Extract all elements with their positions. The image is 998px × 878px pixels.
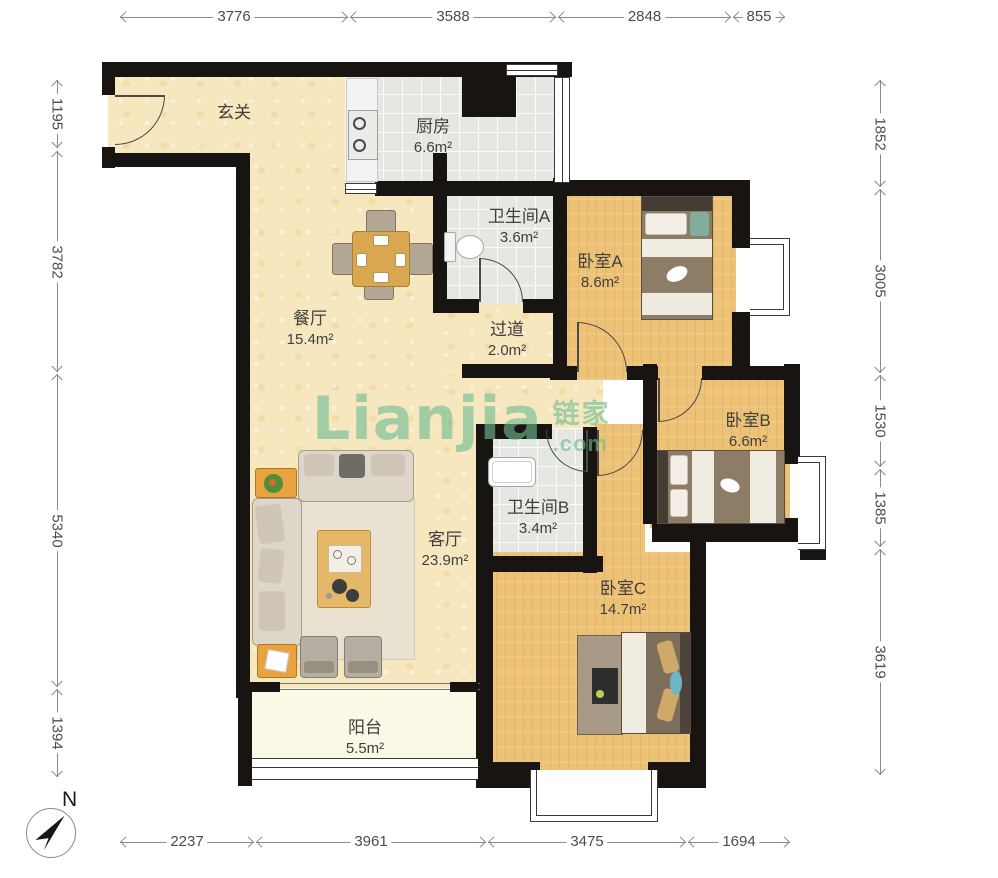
toilet-icon bbox=[444, 232, 456, 262]
dimension-top-3: 2848 bbox=[558, 10, 731, 24]
room-label-bedroom-a: 卧室A 8.6m² bbox=[577, 251, 622, 293]
plant-flower bbox=[269, 479, 276, 486]
balcony-slider-line bbox=[250, 683, 480, 690]
plate bbox=[395, 253, 406, 267]
bay-window-bedroom-b bbox=[798, 456, 826, 550]
sofa-cushion bbox=[259, 591, 285, 631]
dimension-right-3: 1530 bbox=[873, 375, 887, 467]
room-label-entrance: 玄关 bbox=[217, 102, 251, 124]
wall bbox=[450, 682, 478, 692]
bed-sheet bbox=[692, 451, 714, 523]
dimension-left-4: 1394 bbox=[50, 689, 64, 777]
ottoman-band bbox=[304, 661, 334, 673]
room-label-balcony: 阳台 5.5m² bbox=[346, 717, 384, 759]
dimension-right-5: 3619 bbox=[873, 549, 887, 775]
wall bbox=[702, 366, 800, 380]
wall bbox=[553, 178, 567, 380]
room-label-hallway: 过道 2.0m² bbox=[488, 319, 526, 361]
dimension-left-2: 3782 bbox=[50, 151, 64, 372]
floorplan-canvas: Lianjia 链家 .com 玄关 厨房 6.6m² 卫生间A 3.6m² 卧… bbox=[0, 0, 998, 878]
wall bbox=[102, 153, 248, 167]
bed-headboard bbox=[642, 197, 712, 211]
bed-pillow bbox=[670, 489, 688, 517]
bed-accent bbox=[718, 476, 741, 495]
burner-icon bbox=[353, 139, 366, 152]
wall bbox=[553, 180, 750, 196]
wall bbox=[102, 62, 115, 95]
dimension-right-4: 1385 bbox=[873, 469, 887, 547]
tv-panel bbox=[592, 668, 618, 704]
coffee-table bbox=[317, 530, 371, 608]
cup-icon bbox=[333, 550, 342, 559]
dimension-right-2: 3005 bbox=[873, 189, 887, 373]
tray bbox=[328, 545, 362, 573]
bathtub-inner bbox=[492, 461, 532, 483]
sofa-cushion bbox=[304, 454, 334, 476]
wall bbox=[690, 518, 706, 788]
wardrobe-bedroom-c bbox=[577, 635, 623, 735]
plate bbox=[373, 272, 389, 283]
wall bbox=[476, 556, 603, 572]
sofa-top bbox=[298, 450, 414, 502]
room-label-bedroom-c: 卧室C 14.7m² bbox=[600, 578, 647, 620]
ottoman-band bbox=[348, 661, 378, 673]
dimension-top-4: 855 bbox=[733, 10, 785, 24]
balcony-glazing bbox=[252, 758, 478, 780]
wall bbox=[462, 364, 567, 378]
dimension-bottom-2: 3961 bbox=[256, 835, 486, 849]
sofa-cushion bbox=[339, 454, 365, 478]
room-label-bathroom-b: 卫生间B 3.4m² bbox=[507, 497, 569, 539]
dimension-right-1: 1852 bbox=[873, 80, 887, 187]
plate bbox=[356, 253, 367, 267]
bed-accent bbox=[664, 263, 690, 285]
dimension-left-3: 5340 bbox=[50, 374, 64, 687]
side-table bbox=[255, 468, 297, 498]
book-icon bbox=[264, 649, 289, 673]
wall bbox=[238, 686, 252, 786]
sofa-cushion bbox=[254, 503, 285, 544]
bay-window-bedroom-a bbox=[750, 238, 790, 316]
dimension-left-1: 1195 bbox=[50, 80, 64, 148]
window-kitchen bbox=[554, 77, 570, 183]
bed-sheet bbox=[750, 451, 776, 523]
bed-sheet bbox=[642, 239, 712, 257]
bathtub-icon bbox=[488, 457, 536, 487]
dot bbox=[326, 593, 332, 599]
dining-chair bbox=[409, 243, 433, 275]
room-label-bathroom-a: 卫生间A 3.6m² bbox=[488, 206, 550, 248]
wall bbox=[476, 424, 552, 439]
wall bbox=[523, 299, 567, 313]
bed-headboard bbox=[658, 451, 668, 523]
bed-bedroom-a bbox=[641, 196, 713, 320]
toilet-icon bbox=[456, 235, 484, 259]
wall bbox=[433, 299, 479, 313]
wall bbox=[236, 153, 250, 698]
dimension-top-1: 3776 bbox=[120, 10, 348, 24]
compass bbox=[26, 808, 76, 858]
wall bbox=[643, 364, 657, 524]
room-label-bedroom-b: 卧室B 6.6m² bbox=[725, 410, 770, 452]
compass-needle-icon bbox=[27, 809, 72, 854]
ottoman bbox=[344, 636, 382, 678]
room-label-kitchen: 厨房 6.6m² bbox=[414, 116, 452, 158]
bed-sheet bbox=[622, 633, 646, 733]
dimension-bottom-1: 2237 bbox=[120, 835, 254, 849]
kettle-icon bbox=[332, 579, 347, 594]
bed-pillow bbox=[656, 639, 680, 674]
burner-icon bbox=[353, 117, 366, 130]
sofa-left bbox=[252, 498, 302, 646]
kettle-icon bbox=[346, 589, 359, 602]
ottoman bbox=[300, 636, 338, 678]
wall bbox=[732, 190, 750, 248]
stove-icon bbox=[348, 110, 378, 160]
plate bbox=[373, 235, 389, 246]
dimension-bottom-4: 1694 bbox=[688, 835, 790, 849]
bed-accent bbox=[670, 671, 682, 695]
sofa-cushion bbox=[257, 548, 284, 584]
wall-flue bbox=[462, 74, 516, 117]
wall bbox=[250, 682, 280, 692]
bed-sheet bbox=[642, 293, 712, 315]
room-label-dining: 餐厅 15.4m² bbox=[287, 308, 334, 350]
window-kitchen-top bbox=[506, 64, 558, 76]
side-table bbox=[257, 644, 297, 678]
bed-bedroom-c bbox=[621, 632, 691, 734]
dimension-top-2: 3588 bbox=[350, 10, 556, 24]
kitchen-pass-window bbox=[345, 183, 377, 194]
dimension-bottom-3: 3475 bbox=[488, 835, 686, 849]
floor-corridor bbox=[433, 376, 603, 431]
bed-pillow bbox=[670, 455, 688, 485]
plant-icon bbox=[264, 474, 283, 493]
bed-bedroom-b bbox=[657, 450, 785, 524]
sofa-cushion bbox=[371, 454, 405, 476]
bed-pillow bbox=[645, 213, 687, 235]
indicator-dot bbox=[596, 690, 604, 698]
room-label-living: 客厅 23.9m² bbox=[422, 529, 469, 571]
dining-table bbox=[352, 231, 410, 287]
bay-window-bedroom-c bbox=[530, 770, 658, 822]
bed-pillow bbox=[690, 212, 709, 236]
cup-icon bbox=[347, 556, 356, 565]
wall bbox=[375, 181, 573, 196]
